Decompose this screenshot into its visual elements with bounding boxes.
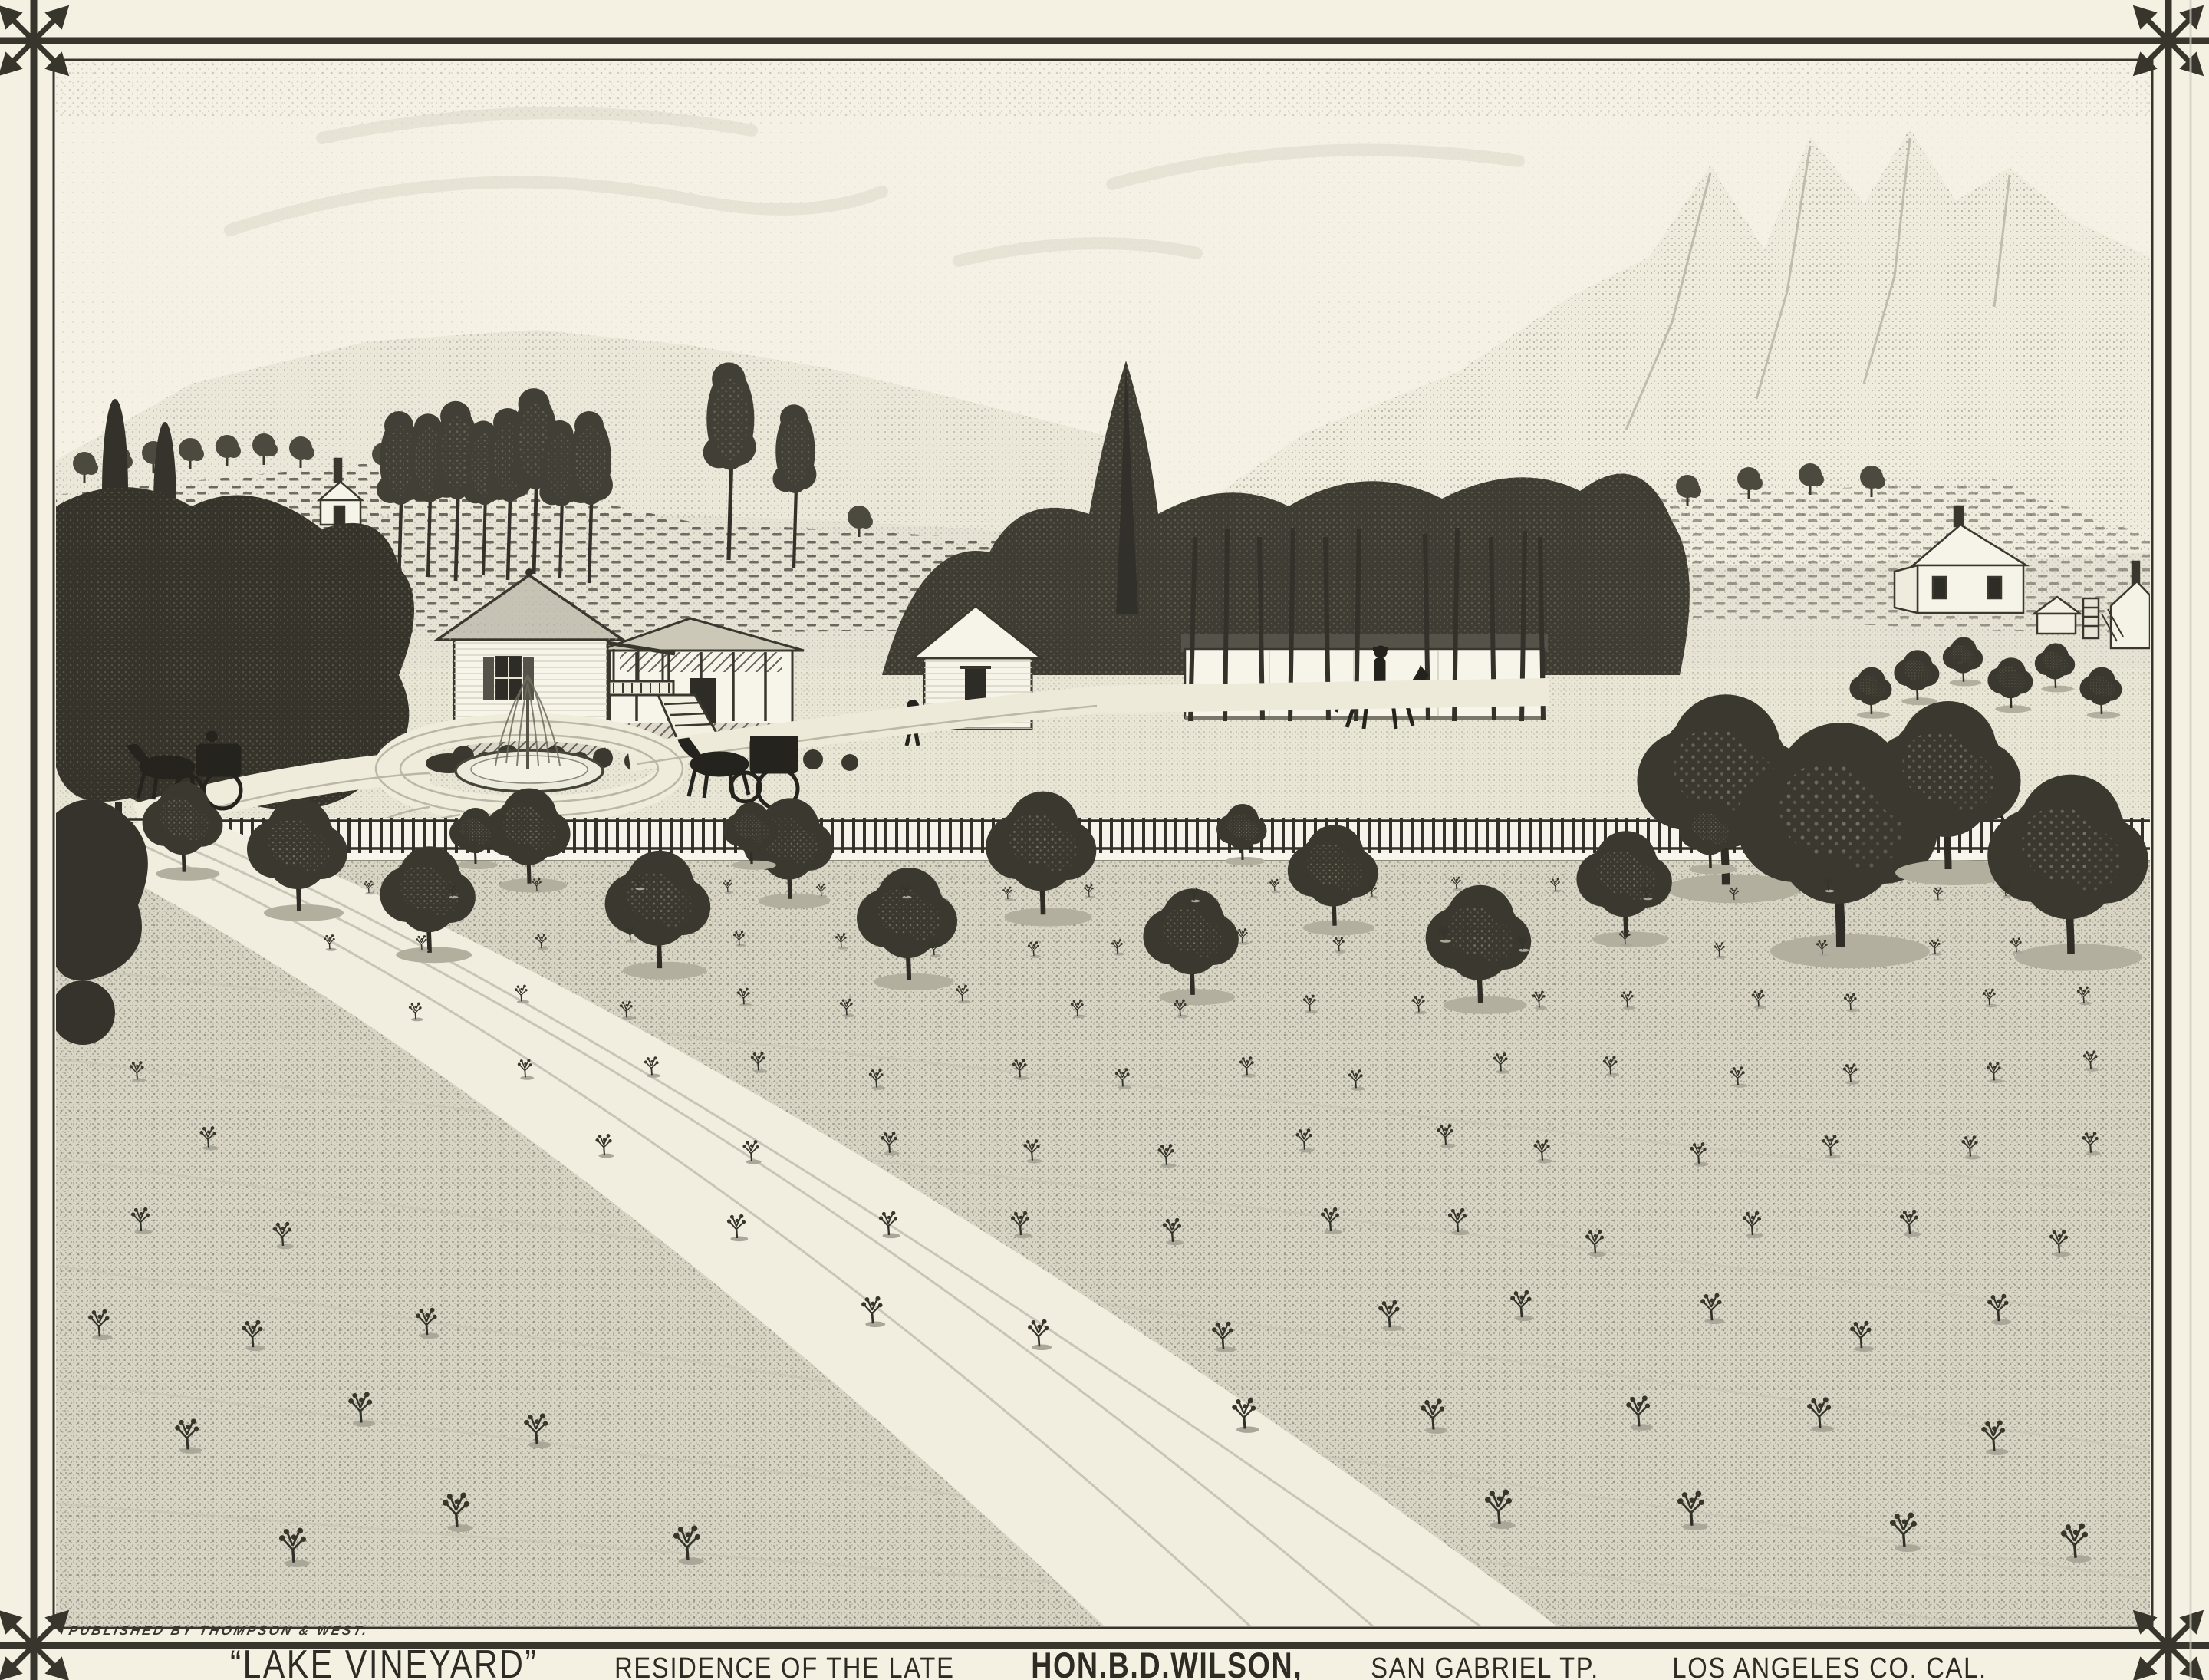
- lithograph-page: PUBLISHED BY THOMPSON & WEST. “LAKE VINE…: [0, 0, 2209, 1680]
- caption-title: “LAKE VINEYARD”: [230, 1645, 538, 1680]
- water-tank-tower: [2083, 598, 2099, 638]
- caption-county: LOS ANGELES CO. CAL.: [1672, 1654, 1987, 1680]
- publisher-credit: PUBLISHED BY THOMPSON & WEST.: [67, 1623, 370, 1639]
- caption-owner: HON.B.D.WILSON,: [1032, 1647, 1303, 1680]
- artwork-scene: [18, 62, 2150, 1626]
- plate-caption: “LAKE VINEYARD” RESIDENCE OF THE LATE HO…: [0, 1645, 2209, 1680]
- lithograph-plate: [0, 0, 2209, 1680]
- caption-subtitle: RESIDENCE OF THE LATE: [614, 1654, 954, 1680]
- caption-township: SAN GABRIEL TP.: [1371, 1654, 1599, 1680]
